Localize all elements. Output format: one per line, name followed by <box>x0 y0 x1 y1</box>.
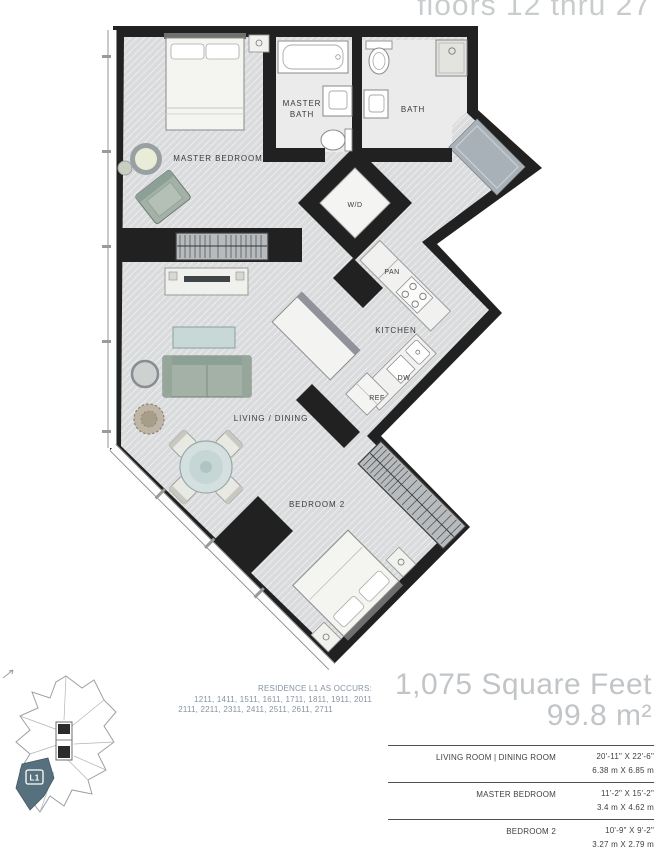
shower <box>436 40 467 76</box>
row-metric: 3.4 m X 4.62 m <box>556 803 654 812</box>
area-imperial: 1,075 Square Feet <box>330 669 652 700</box>
coffee-table <box>173 327 235 348</box>
master-closet <box>176 233 268 260</box>
row-imperial: 10'-9" X 9'-2" <box>556 826 654 835</box>
wall-bath-divider <box>352 37 362 152</box>
floor-plan: W/D <box>0 0 661 672</box>
wall-mb-bath-divider <box>263 37 276 159</box>
table-row: LIVING ROOM | DINING ROOM 20'-11" X 22'-… <box>388 745 654 782</box>
kitchen-label: KITCHEN <box>375 326 416 335</box>
unit-l1-label: L1 <box>30 774 40 783</box>
area-block: 1,075 Square Feet 99.8 m² <box>330 669 652 731</box>
unit-l1-highlight: L1 <box>16 758 54 810</box>
table-row: BEDROOM 2 10'-9" X 9'-2" 3.27 m X 2.79 m <box>388 819 654 856</box>
wd-label: W/D <box>347 202 362 209</box>
media-console <box>165 268 248 295</box>
north-arrow-icon <box>3 670 13 678</box>
master-bed <box>164 33 246 130</box>
window-wall-west <box>102 30 117 448</box>
master-bath-label-2: BATH <box>290 110 314 119</box>
bath-toilet <box>369 48 389 74</box>
pantry-label: PAN <box>384 269 399 276</box>
master-nightstand <box>249 35 269 52</box>
master-bath-sink <box>323 86 352 116</box>
bath-label: BATH <box>401 105 425 114</box>
living-dining-label: LIVING / DINING <box>234 414 308 423</box>
row-label: LIVING ROOM | DINING ROOM <box>388 752 556 775</box>
refrigerator-label: REF <box>369 395 385 402</box>
master-bath-toilet <box>321 130 345 150</box>
building-core <box>56 722 72 760</box>
row-metric: 6.38 m X 6.85 m <box>556 766 654 775</box>
row-label: MASTER BEDROOM <box>388 789 556 812</box>
row-label: BEDROOM 2 <box>388 826 556 849</box>
key-plan: L1 <box>2 660 136 836</box>
master-bedroom-label: MASTER BEDROOM <box>173 154 263 163</box>
row-metric: 3.27 m X 2.79 m <box>556 840 654 849</box>
area-metric: 99.8 m² <box>330 700 652 731</box>
bedroom2-label: BEDROOM 2 <box>289 500 345 509</box>
dining-set <box>169 430 244 505</box>
table-row: MASTER BEDROOM 11'-2" X 15'-2" 3.4 m X 4… <box>388 782 654 819</box>
plant <box>134 404 164 434</box>
row-imperial: 11'-2" X 15'-2" <box>556 789 654 798</box>
dimensions-table: LIVING ROOM | DINING ROOM 20'-11" X 22'-… <box>388 745 654 856</box>
tv <box>184 276 230 282</box>
side-table <box>132 361 158 387</box>
floorplan-page: { "header": { "floors_label": "floors 12… <box>0 0 661 839</box>
wall-mbath-south <box>263 148 325 162</box>
dishwasher-label: DW <box>398 375 411 382</box>
row-imperial: 20'-11" X 22'-6" <box>556 752 654 761</box>
sofa <box>163 356 251 397</box>
master-bath-label-1: MASTER <box>283 99 322 108</box>
